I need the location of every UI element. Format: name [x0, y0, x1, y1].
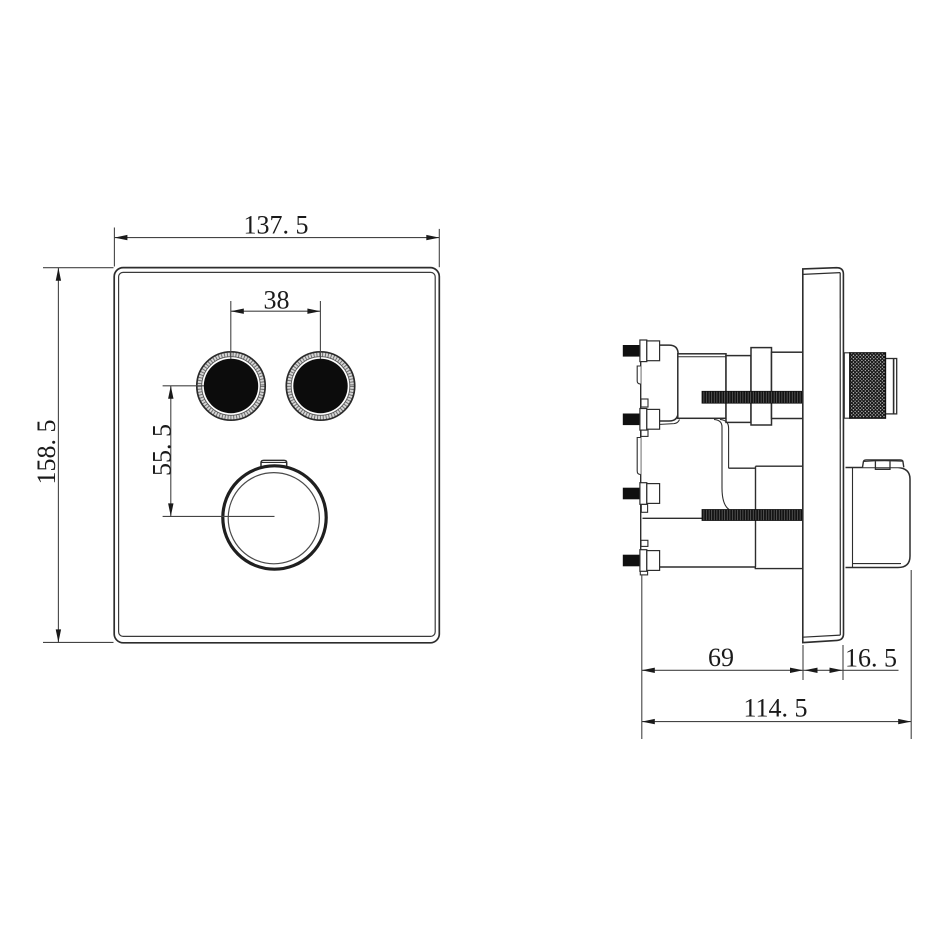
svg-text:38: 38	[264, 286, 290, 315]
svg-text:16. 5: 16. 5	[845, 644, 897, 673]
svg-text:137. 5: 137. 5	[244, 211, 309, 240]
svg-text:69: 69	[708, 643, 734, 672]
svg-text:55. 5: 55. 5	[148, 424, 177, 476]
svg-text:114. 5: 114. 5	[743, 694, 807, 723]
svg-text:158. 5: 158. 5	[32, 420, 61, 485]
